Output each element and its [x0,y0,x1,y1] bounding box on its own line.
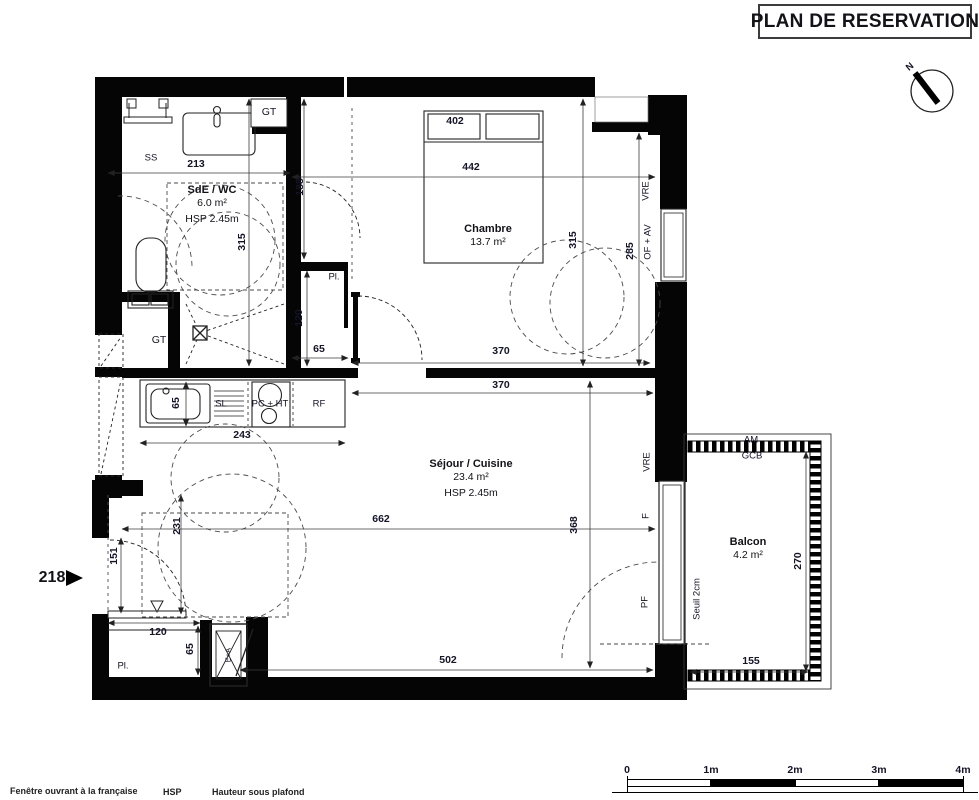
dimension-65-10: 65 [170,397,182,409]
label-vre-11: VRE [642,452,653,472]
unit-number: 218 [39,569,66,587]
scale-label-3m: 3m [871,764,886,776]
room-label-chambre: Chambre13.7 m² [464,223,512,249]
room-area-sejour: 23.4 m² [429,471,512,484]
dimension-120-6: 120 [293,309,305,327]
label-am-15: AM [744,435,758,446]
dimension-188-2: 188 [294,178,306,196]
label-rf-8: RF [313,399,326,410]
facade-window-tall [99,377,123,476]
label-e-a-17: E+A [224,648,233,662]
label-402-0: 402 [446,115,464,127]
label-vre-9: VRE [641,181,652,201]
scale-label-1m: 1m [703,764,718,776]
room-name-sejour: Séjour / Cuisine [429,458,512,471]
facade-window-small [99,334,123,368]
room-name-balcon: Balcon [730,536,767,549]
legend-hsp-abbr: HSP [163,787,182,797]
label-pc-ht-7: PC + HT [252,399,289,410]
label-of-av-10: OF + AV [643,224,654,259]
dimension-370-8: 370 [492,345,510,357]
shower [186,304,284,364]
dimension-151-15: 151 [108,547,120,565]
dimension-315-4: 315 [567,231,579,249]
dimension-442-1: 442 [462,161,480,173]
label-pl-5: Pl. [117,661,128,672]
scale-baseline [612,792,978,793]
entrance-marker-icon [151,601,163,612]
room-label-sde: SdE / WC6.0 m²HSP 2.45m [185,184,239,226]
label-sl-6: SL [215,399,227,410]
label-seuil-2cm-14: Seuil 2cm [692,578,703,620]
scale-segment [879,779,963,787]
dimension-213-0: 213 [187,158,205,170]
legend-hsp-label: Hauteur sous plafond [212,787,305,797]
dimension-662-12: 662 [372,513,390,525]
scale-label-0: 0 [624,764,630,776]
scale-tick [963,776,964,793]
fixtures-layer [108,99,543,686]
dimension-243-11: 243 [233,429,251,441]
label-gt-3: GT [152,334,167,346]
room-area-sde: 6.0 m² [185,197,239,210]
dimension-370-9: 370 [492,379,510,391]
dimension-270-19: 270 [792,552,804,570]
dimension-120-16: 120 [149,626,167,638]
chambre-window [661,209,686,281]
floor-plan-drawing [0,0,979,800]
compass [911,70,953,112]
room-label-balcon: Balcon4.2 m² [730,536,767,562]
building-notch [595,97,648,122]
balcony-french-door [659,481,685,644]
dimension-315-3: 315 [236,233,248,251]
room-label-sejour: Séjour / Cuisine23.4 m²HSP 2.45m [429,458,512,500]
room-name-chambre: Chambre [464,223,512,236]
label-pl-4: Pl. [328,272,339,283]
openings-layer [99,182,686,644]
label-gcb-16: GCB [742,451,763,462]
dimension-65-17: 65 [184,643,196,655]
dimension-285-5: 285 [624,242,636,260]
scale-label-2m: 2m [787,764,802,776]
scale-tick [627,776,628,793]
scale-segment [627,779,711,787]
dimension-155-20: 155 [742,655,760,667]
label-gt-2: GT [262,106,277,118]
label-pf-13: PF [640,596,651,608]
dimension-368-13: 368 [568,516,580,534]
scale-segment [711,779,795,787]
entrance-arrow-icon [66,570,83,586]
towel-rail [124,99,172,123]
room-area-balcon: 4.2 m² [730,549,767,562]
dimension-231-14: 231 [171,517,183,535]
scale-label-4m: 4m [955,764,970,776]
chambre-door [351,292,422,363]
bathroom-sink [183,107,255,156]
floor-plan-page: PLAN DE RESERVATION 218 2134421883153152… [0,0,979,800]
dimension-65-7: 65 [313,343,325,355]
balcony-railing-right [810,441,821,681]
room-hsp-sejour: HSP 2.45m [429,487,512,500]
room-name-sde: SdE / WC [185,184,239,197]
dimension-502-18: 502 [439,654,457,666]
legend-window-label: Fenêtre ouvrant à la française [10,786,138,796]
scale-bar: 01m2m3m4m [612,762,979,796]
label-f-12: F [641,513,652,519]
label-ss-1: SS [145,153,158,164]
room-area-chambre: 13.7 m² [464,236,512,249]
room-hsp-sde: HSP 2.45m [185,213,239,226]
scale-segment [795,779,879,787]
plan-title: PLAN DE RESERVATION [758,4,972,39]
